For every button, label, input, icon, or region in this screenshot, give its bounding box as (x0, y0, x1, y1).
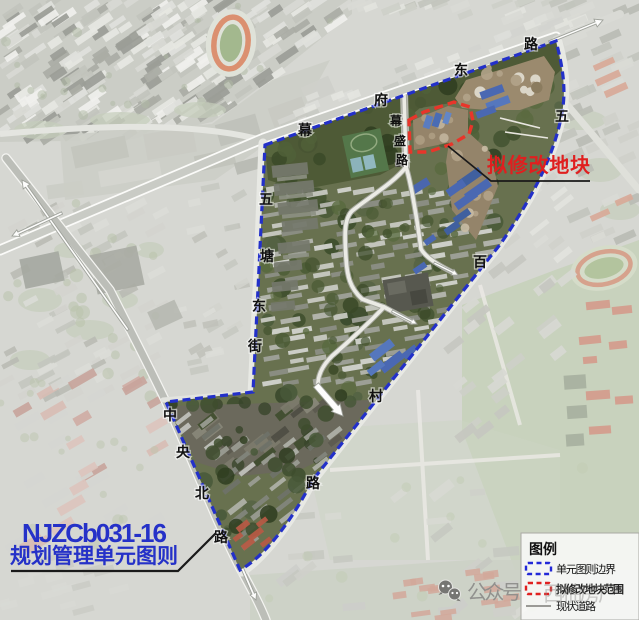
svg-text:百: 百 (473, 254, 487, 270)
svg-text:规划管理单元图则: 规划管理单元图则 (10, 544, 178, 568)
svg-text:NJZCb031-16: NJZCb031-16 (22, 518, 167, 548)
svg-text:路: 路 (396, 152, 409, 167)
svg-text:公众号: 公众号 (467, 581, 522, 604)
svg-text:央: 央 (176, 444, 191, 460)
svg-text:图例: 图例 (529, 541, 557, 557)
svg-text:路: 路 (524, 36, 539, 52)
svg-text:东: 东 (252, 298, 266, 314)
svg-text:塘: 塘 (260, 248, 274, 264)
svg-text:路: 路 (214, 529, 229, 545)
svg-text:西柚房产: 西柚房产 (543, 583, 619, 606)
svg-text:拟修改地块: 拟修改地块 (487, 153, 591, 177)
svg-text:单元图则边界: 单元图则边界 (556, 563, 616, 576)
svg-text:五: 五 (259, 191, 273, 207)
svg-text:北: 北 (195, 485, 209, 501)
svg-text:街: 街 (247, 338, 262, 354)
svg-text:中: 中 (163, 407, 177, 423)
svg-text:府: 府 (374, 92, 388, 108)
svg-text:幕: 幕 (389, 113, 403, 128)
svg-text:村: 村 (369, 388, 383, 404)
svg-text:五: 五 (555, 108, 569, 124)
svg-text:盛: 盛 (394, 133, 406, 148)
svg-text:路: 路 (306, 475, 321, 491)
svg-text:幕: 幕 (297, 122, 313, 138)
svg-text:东: 东 (454, 62, 468, 78)
